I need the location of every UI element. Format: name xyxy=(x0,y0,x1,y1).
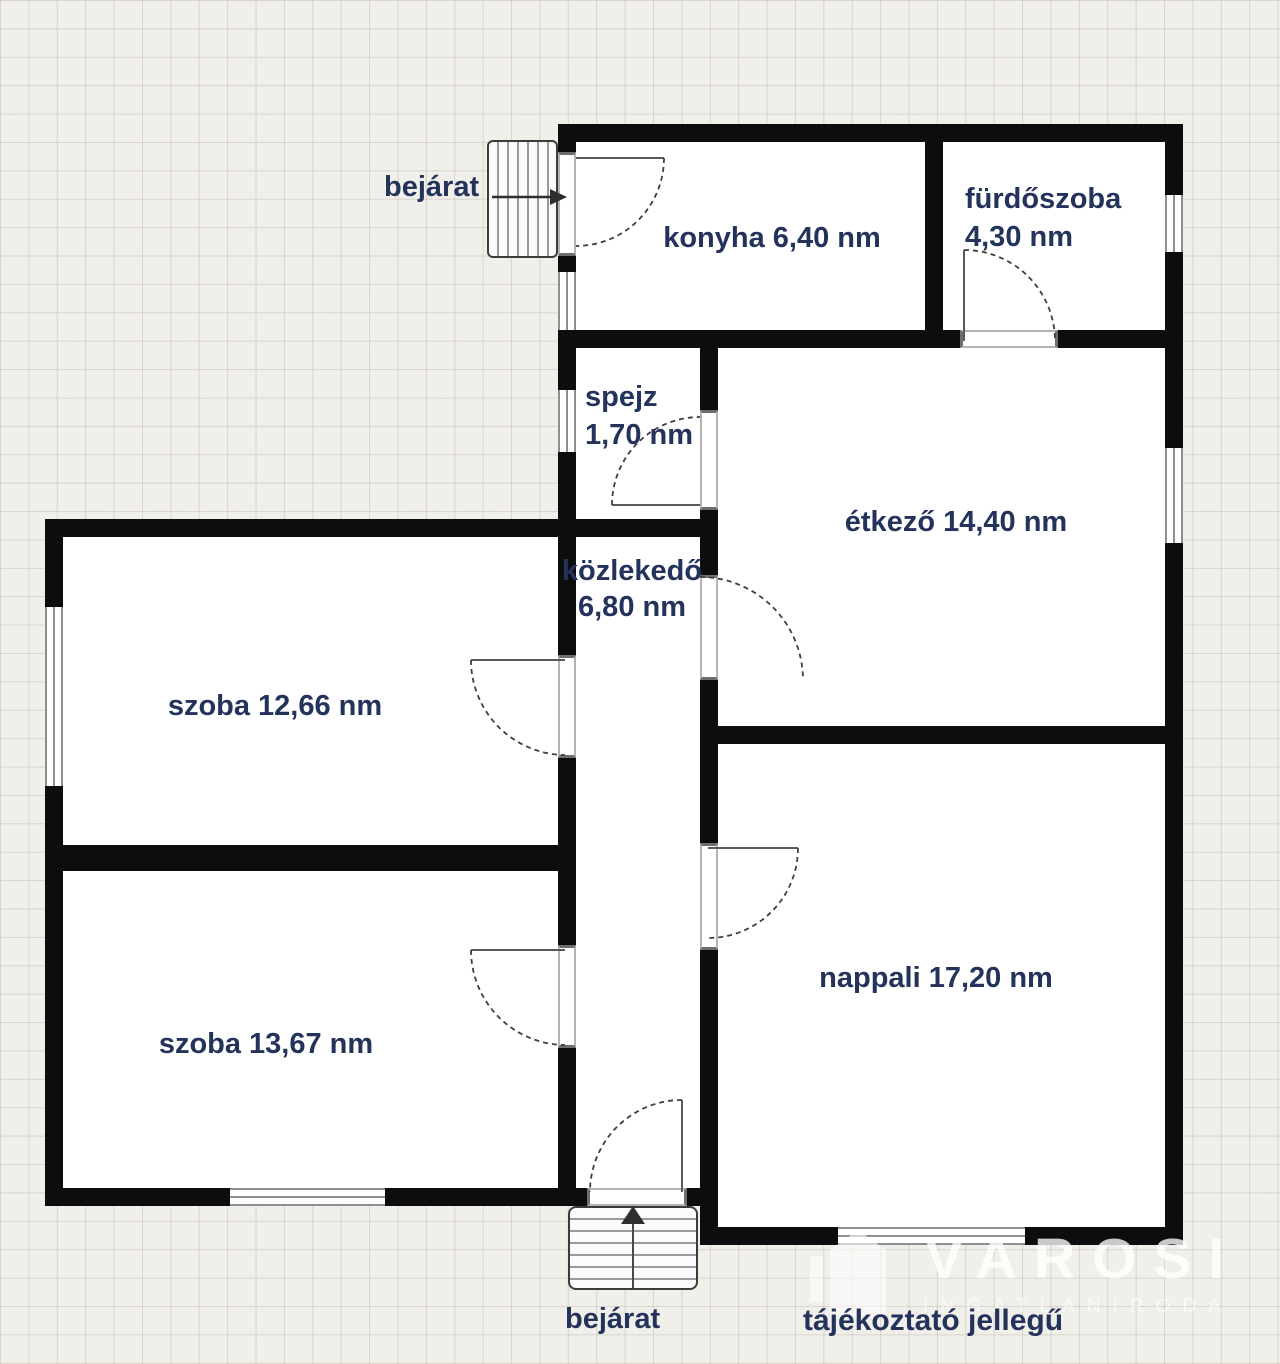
door-jamb xyxy=(700,575,718,680)
wall-segment xyxy=(45,786,63,1206)
wall-segment xyxy=(45,845,576,871)
wall-segment xyxy=(925,124,943,348)
wall-segment xyxy=(558,871,576,945)
wall-segment xyxy=(558,124,1183,142)
wall-segment xyxy=(558,452,576,519)
door-jamb xyxy=(558,152,576,256)
room-name: spejz xyxy=(585,381,658,413)
wall-segment xyxy=(558,1048,576,1188)
room-floor-kozlekedo xyxy=(576,537,700,1188)
wall-segment xyxy=(700,510,718,575)
floor-plan-canvas: konyha 6,40 nm fürdőszoba 4,30 nm spejz … xyxy=(0,0,1280,1364)
door-jamb xyxy=(960,330,1058,348)
window xyxy=(230,1188,385,1206)
window xyxy=(558,272,576,330)
room-label-spejz: spejz 1,70 nm xyxy=(585,378,693,454)
disclaimer-text: tájékoztató jellegű xyxy=(803,1302,1063,1340)
wall-segment xyxy=(700,744,718,843)
wall-segment xyxy=(1165,124,1183,195)
entrance-label-bottom: bejárat xyxy=(565,1300,660,1338)
wall-segment xyxy=(700,726,1183,744)
watermark-brand: VAROSI xyxy=(925,1226,1241,1292)
door-jamb xyxy=(587,1188,687,1206)
room-name: közlekedő xyxy=(562,555,702,587)
door-jamb xyxy=(558,945,576,1048)
window xyxy=(1165,448,1183,543)
wall-segment xyxy=(700,330,718,410)
stairs-divider xyxy=(632,1208,634,1288)
entrance-mat-icon xyxy=(487,140,558,258)
room-label-nappali: nappali 17,20 nm xyxy=(819,959,1053,997)
wall-segment xyxy=(700,680,718,726)
window xyxy=(1165,195,1183,252)
room-area: 6,80 nm xyxy=(578,591,686,623)
wall-segment xyxy=(558,124,576,152)
room-label-szoba1: szoba 12,66 nm xyxy=(168,687,382,725)
room-label-kozlekedo: közlekedő 6,80 nm xyxy=(562,553,702,625)
wall-segment xyxy=(45,519,63,607)
room-area: 4,30 nm xyxy=(965,221,1073,253)
door-jamb xyxy=(558,655,576,758)
wall-segment xyxy=(45,1188,230,1206)
room-label-etkezo: étkező 14,40 nm xyxy=(845,503,1067,541)
room-label-konyha: konyha 6,40 nm xyxy=(663,219,881,257)
wall-segment xyxy=(700,950,718,1245)
wall-segment xyxy=(558,330,960,348)
wall-segment xyxy=(385,1188,587,1206)
wall-segment xyxy=(558,348,576,390)
window xyxy=(45,607,63,786)
wall-segment xyxy=(558,256,576,272)
wall-segment xyxy=(558,758,576,845)
door-jamb xyxy=(700,410,718,510)
wall-segment xyxy=(1165,252,1183,448)
window xyxy=(558,390,576,452)
room-label-furdoszoba: fürdőszoba 4,30 nm xyxy=(965,180,1121,256)
wall-segment xyxy=(1165,543,1183,1245)
wall-segment xyxy=(558,330,576,348)
wall-segment xyxy=(45,519,718,537)
entrance-label-top: bejárat xyxy=(384,168,479,206)
room-label-szoba2: szoba 13,67 nm xyxy=(159,1025,373,1063)
room-area: 1,70 nm xyxy=(585,419,693,451)
door-jamb xyxy=(700,843,718,950)
room-name: fürdőszoba xyxy=(965,183,1121,215)
